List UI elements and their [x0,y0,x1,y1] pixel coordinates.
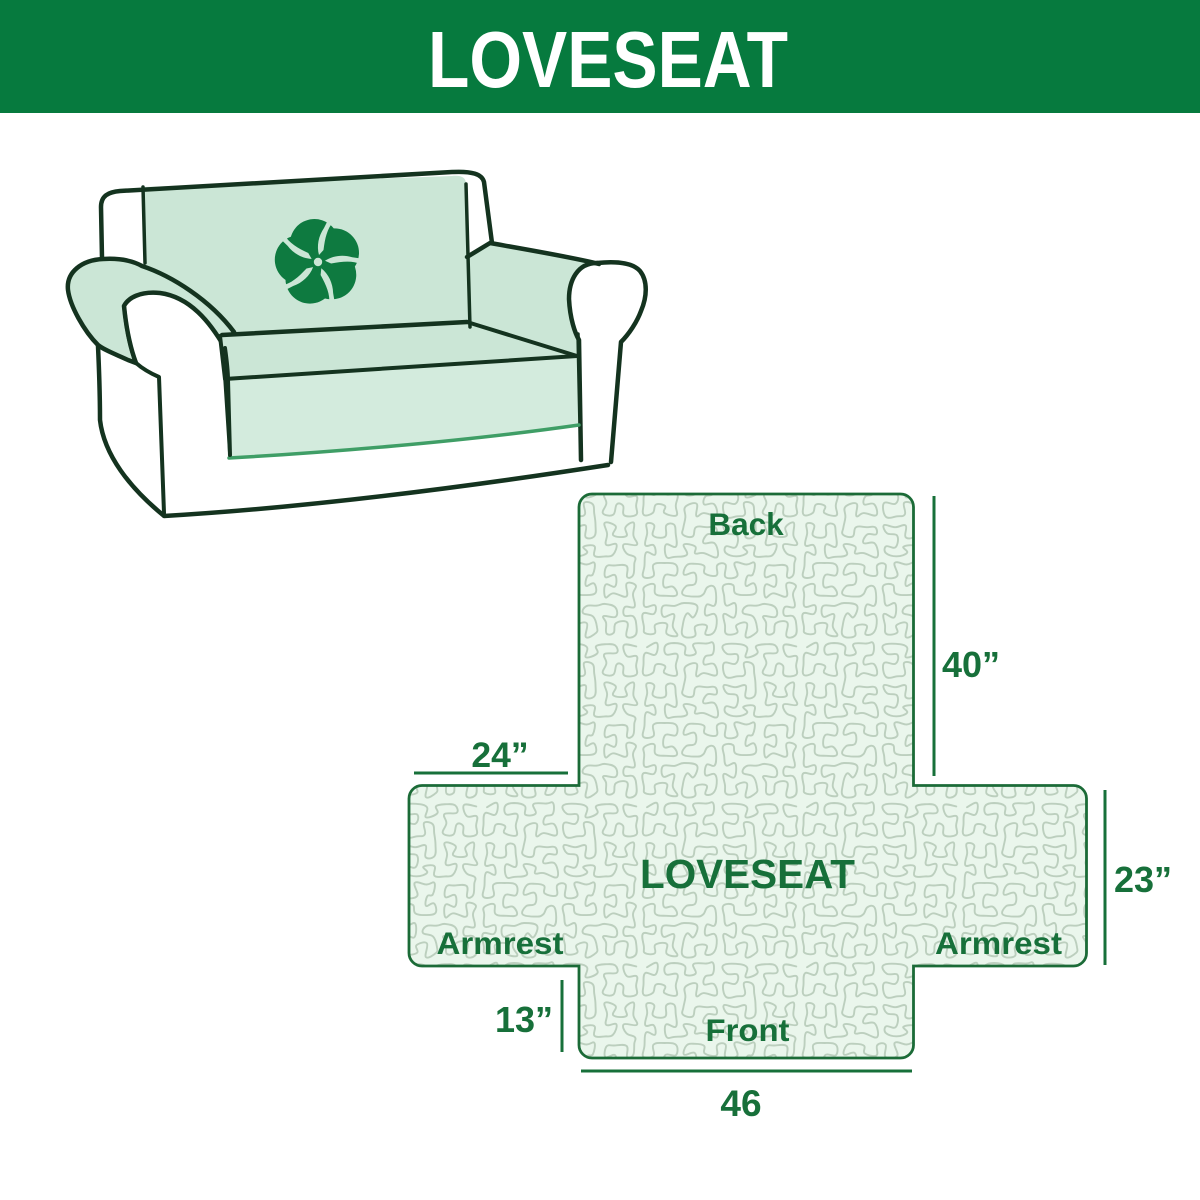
svg-text:LOVESEAT: LOVESEAT [428,15,788,104]
svg-text:Armrest: Armrest [437,925,565,961]
svg-text:40”: 40” [942,644,1000,685]
svg-text:LOVESEAT: LOVESEAT [640,851,855,897]
svg-text:Back: Back [708,506,784,542]
svg-text:24”: 24” [471,735,528,775]
svg-text:Armrest: Armrest [935,925,1063,961]
svg-text:46: 46 [720,1083,761,1124]
svg-text:Front: Front [706,1012,791,1048]
svg-text:13”: 13” [495,999,553,1040]
svg-text:23”: 23” [1114,859,1172,900]
